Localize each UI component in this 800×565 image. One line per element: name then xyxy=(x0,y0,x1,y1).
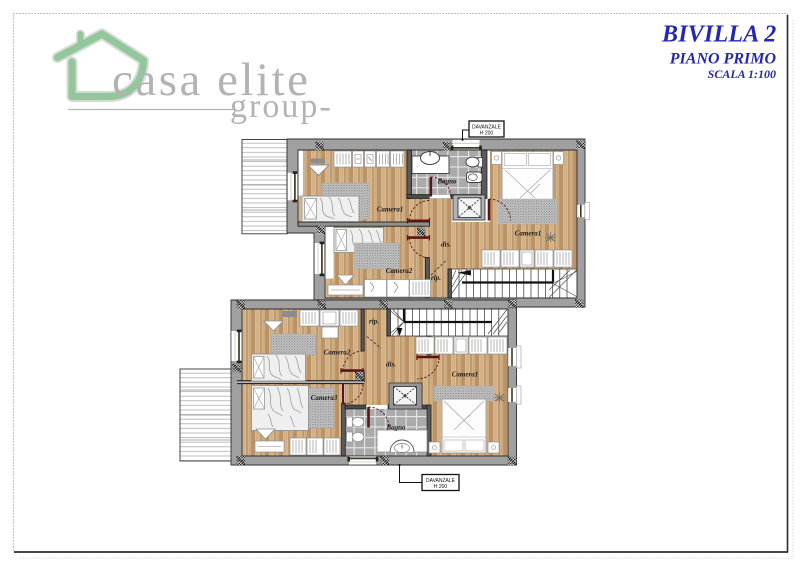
svg-text:SCALA 1:100: SCALA 1:100 xyxy=(708,67,776,81)
svg-text:group-: group- xyxy=(230,88,333,125)
svg-text:Bagno: Bagno xyxy=(385,424,406,432)
svg-text:Camera3: Camera3 xyxy=(311,394,338,402)
svg-text:Camera1: Camera1 xyxy=(377,206,403,214)
svg-text:Camera1: Camera1 xyxy=(515,230,541,238)
svg-text:Camera2: Camera2 xyxy=(324,349,351,357)
svg-text:H 200: H 200 xyxy=(434,484,448,490)
svg-text:Camera1: Camera1 xyxy=(452,371,478,379)
svg-text:Bagno: Bagno xyxy=(436,178,457,186)
svg-text:H 200: H 200 xyxy=(480,131,494,137)
svg-text:rip.: rip. xyxy=(431,274,441,282)
svg-text:PIANO PRIMO: PIANO PRIMO xyxy=(669,51,777,68)
svg-text:rip.: rip. xyxy=(369,318,379,326)
svg-text:dis.: dis. xyxy=(441,241,451,249)
svg-text:Camera2: Camera2 xyxy=(386,267,413,275)
svg-text:BIVILLA 2: BIVILLA 2 xyxy=(661,22,777,48)
svg-text:dis.: dis. xyxy=(386,361,396,369)
